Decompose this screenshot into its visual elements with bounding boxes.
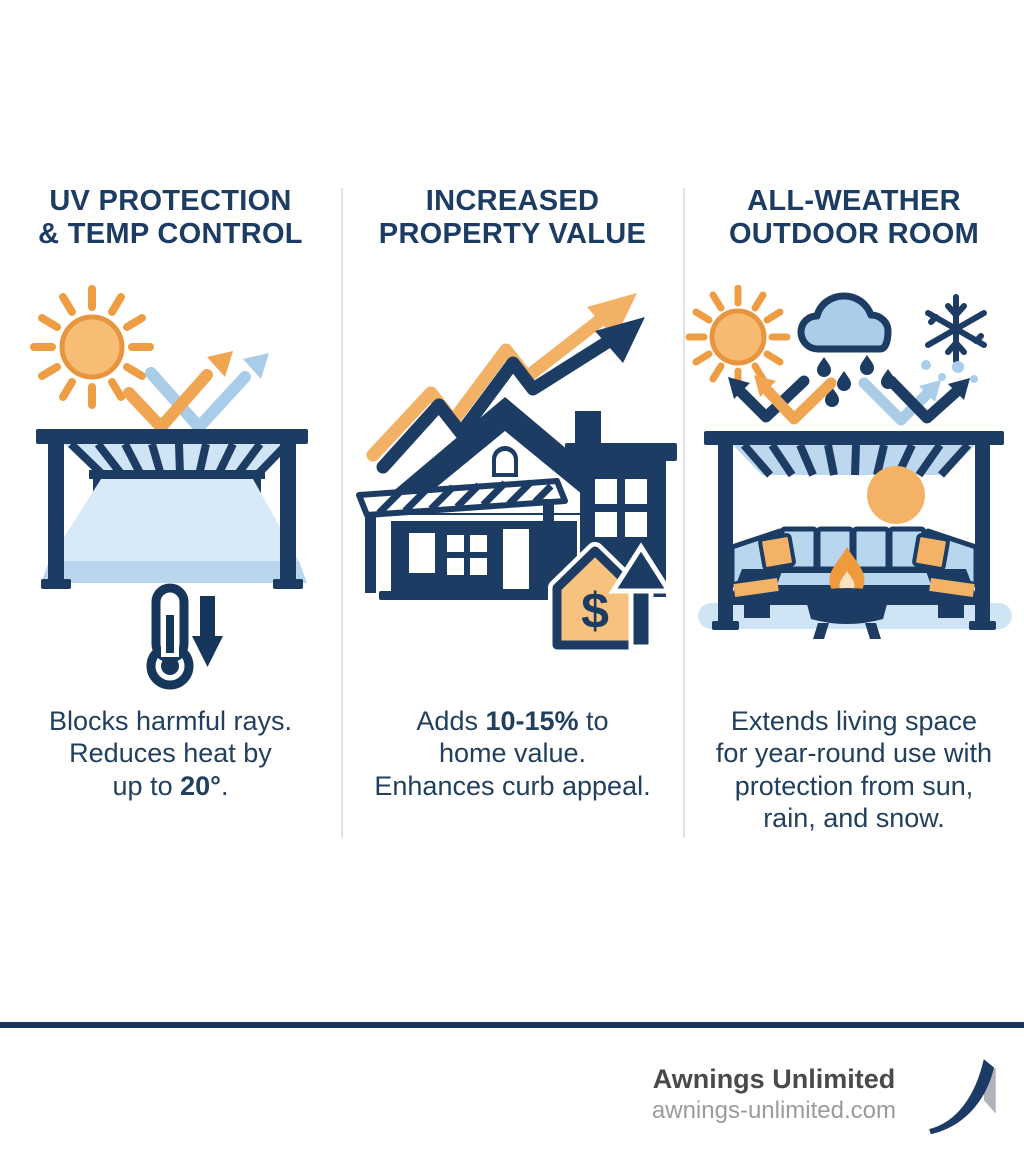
uv-illustration-svg (1, 285, 341, 695)
illustration-weather (684, 285, 1024, 695)
caption-text: Extends living space (731, 706, 977, 736)
footer-text-block: Awnings Unlimited awnings-unlimited.com (652, 1064, 896, 1126)
value-illustration-svg: $ (343, 285, 683, 695)
background-sun (867, 466, 925, 524)
title-line: PROPERTY VALUE (379, 218, 646, 250)
column-title-uv: UV PROTECTION & TEMP CONTROL (0, 185, 341, 277)
column-uv-protection: UV PROTECTION & TEMP CONTROL (0, 185, 341, 802)
caption-text: Adds (416, 706, 485, 736)
footer: Awnings Unlimited awnings-unlimited.com (652, 1052, 1006, 1138)
caption-text: protection from sun, (735, 771, 974, 801)
column-title-value: INCREASED PROPERTY VALUE (342, 185, 683, 277)
company-website: awnings-unlimited.com (652, 1097, 896, 1126)
column-caption-value: Adds 10-15% to home value. Enhances curb… (348, 705, 677, 802)
sun-icon (34, 289, 150, 405)
sun-icon (689, 288, 787, 386)
caption-text: for year-round use with (716, 738, 992, 768)
caption-text: up to (113, 771, 181, 801)
footer-divider (0, 1022, 1024, 1028)
dollar-house-icon: $ (557, 551, 633, 645)
rain-cloud-icon (801, 296, 895, 407)
pergola-lounge-icon (698, 431, 1012, 639)
title-line: UV PROTECTION (49, 185, 291, 217)
weather-illustration-svg (684, 285, 1024, 695)
company-logo-swoosh-icon (924, 1052, 1006, 1138)
column-caption-uv: Blocks harmful rays. Reduces heat by up … (6, 705, 335, 802)
caption-text-bold: 10-15% (485, 706, 578, 736)
thermometer-icon (151, 588, 189, 685)
illustration-value: $ (342, 285, 683, 695)
caption-text: home value. (439, 738, 586, 768)
reflection-arrows-icon (129, 351, 269, 427)
caption-text: Enhances curb appeal. (374, 771, 650, 801)
company-name: Awnings Unlimited (652, 1064, 896, 1095)
column-property-value: INCREASED PROPERTY VALUE (342, 185, 683, 802)
title-line: OUTDOOR ROOM (729, 218, 979, 250)
column-divider (341, 188, 343, 838)
column-caption-weather: Extends living space for year-round use … (690, 705, 1018, 835)
caption-text: to (579, 706, 609, 736)
column-all-weather: ALL-WEATHER OUTDOOR ROOM (684, 185, 1024, 835)
pergola-icon (36, 429, 308, 589)
column-title-weather: ALL-WEATHER OUTDOOR ROOM (684, 185, 1024, 277)
title-line: INCREASED (426, 185, 600, 217)
dollar-sign: $ (581, 583, 609, 639)
down-arrow-icon (192, 596, 223, 667)
caption-text: . (221, 771, 229, 801)
caption-text-bold: 20° (180, 771, 221, 801)
snowflake-icon (921, 297, 984, 383)
caption-text: Blocks harmful rays. (49, 706, 292, 736)
illustration-uv (0, 285, 341, 695)
title-line: ALL-WEATHER (747, 185, 961, 217)
caption-text: Reduces heat by (69, 738, 272, 768)
caption-text: rain, and snow. (763, 803, 945, 833)
column-divider (683, 188, 685, 838)
title-line: & TEMP CONTROL (38, 218, 303, 250)
